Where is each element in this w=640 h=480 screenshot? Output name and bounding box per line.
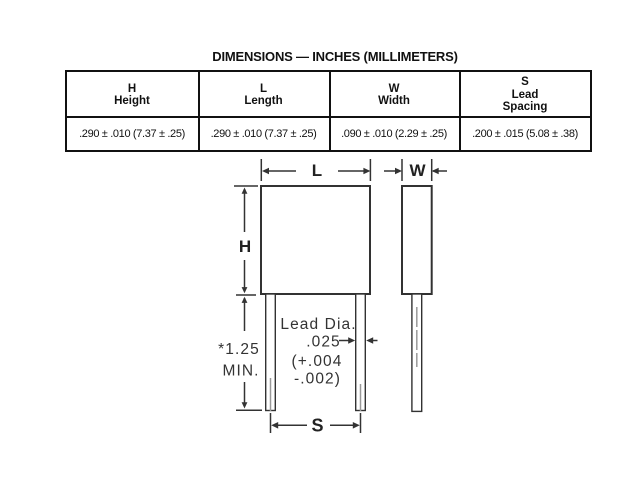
svg-text:W: W xyxy=(409,161,426,180)
svg-text:(+.004: (+.004 xyxy=(292,353,343,370)
svg-text:-.002): -.002) xyxy=(294,371,341,388)
svg-text:Lead Dia.: Lead Dia. xyxy=(280,316,356,333)
svg-text:.025: .025 xyxy=(306,334,341,351)
svg-text:H: H xyxy=(239,237,251,256)
svg-text:MIN.: MIN. xyxy=(222,363,259,380)
svg-text:*1.25: *1.25 xyxy=(218,341,260,358)
svg-text:L: L xyxy=(312,161,322,180)
svg-text:S: S xyxy=(311,416,323,436)
